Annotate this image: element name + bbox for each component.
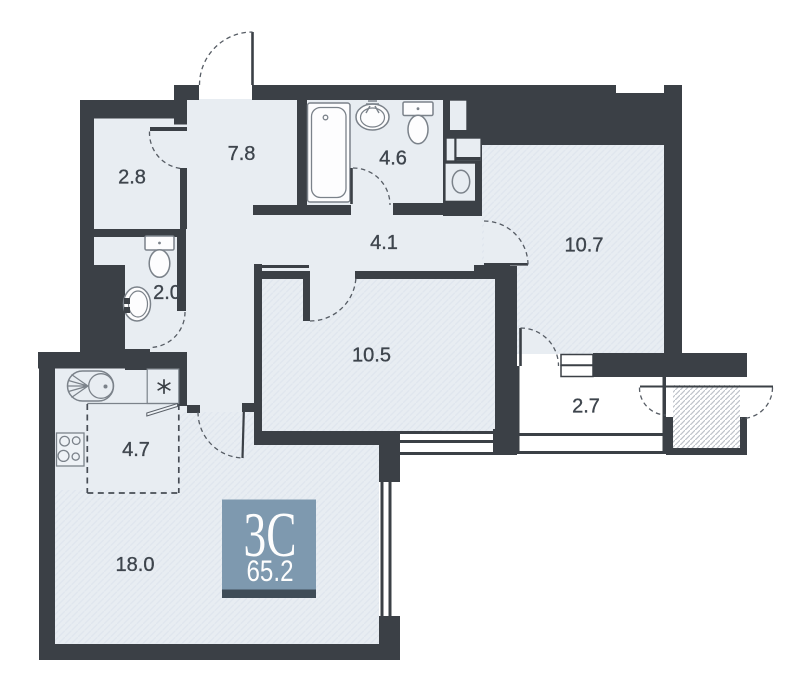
svg-text:2.0: 2.0: [153, 282, 181, 304]
svg-text:4.1: 4.1: [370, 232, 398, 254]
svg-text:4.6: 4.6: [379, 148, 407, 170]
svg-text:18.0: 18.0: [116, 554, 155, 576]
svg-text:7.8: 7.8: [228, 143, 256, 165]
svg-text:4.7: 4.7: [122, 439, 150, 461]
svg-text:10.5: 10.5: [352, 345, 391, 367]
svg-text:65.2: 65.2: [247, 555, 294, 588]
svg-text:2.7: 2.7: [572, 396, 600, 418]
svg-text:10.7: 10.7: [565, 235, 604, 257]
svg-text:2.8: 2.8: [118, 167, 146, 189]
